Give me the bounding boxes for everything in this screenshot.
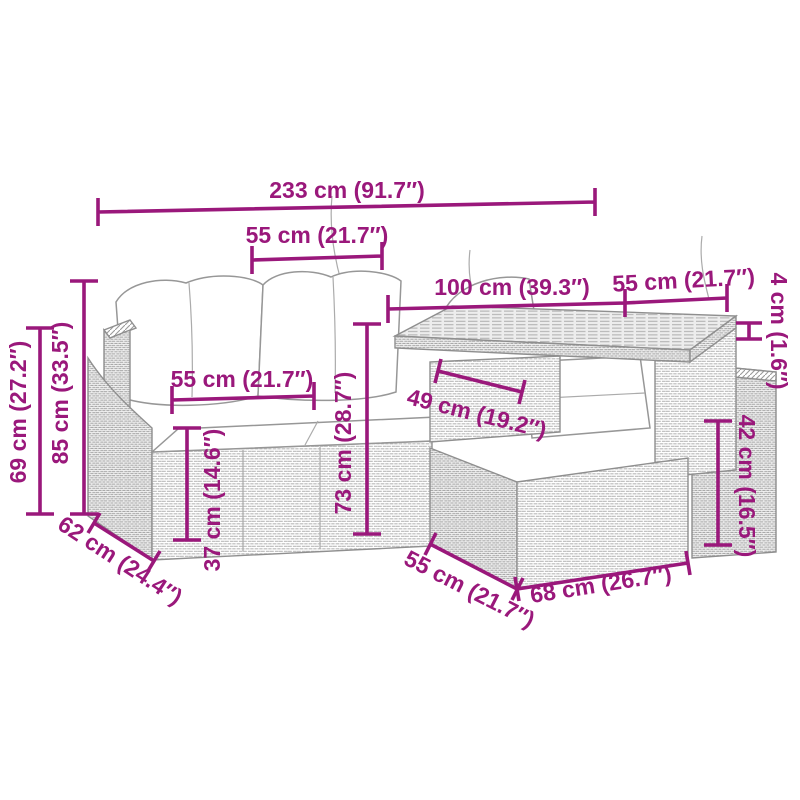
dim-label-total-height: 85 cm (33.5″)	[47, 322, 73, 465]
dim-label-armrest-height: 69 cm (27.2″)	[5, 341, 31, 484]
dim-label-seat-width: 55 cm (21.7″)	[171, 366, 314, 392]
dim-label-seat-height: 37 cm (14.6″)	[199, 429, 225, 572]
dim-table-extension: 55 cm (21.7″)	[612, 263, 756, 312]
dim-label-backrest-width: 55 cm (21.7″)	[246, 222, 389, 248]
dim-label-table-extension: 55 cm (21.7″)	[612, 263, 756, 296]
dim-label-tabletop-thickness: 4 cm (1.6″)	[766, 272, 792, 389]
dim-seat-width: 55 cm (21.7″)	[171, 366, 314, 414]
dim-label-total-width: 233 cm (91.7″)	[269, 177, 425, 203]
dim-total-width: 233 cm (91.7″)	[98, 177, 595, 226]
diagram-canvas: 233 cm (91.7″) 55 cm (21.7″) 100 cm (39.…	[0, 0, 800, 800]
dim-label-table-length: 100 cm (39.3″)	[434, 274, 590, 300]
furniture-dimension-diagram: 233 cm (91.7″) 55 cm (21.7″) 100 cm (39.…	[0, 0, 800, 800]
dim-label-table-base-height: 42 cm (16.5″)	[734, 415, 760, 558]
dim-label-backrest-height: 73 cm (28.7″)	[330, 372, 356, 515]
dim-backrest-width: 55 cm (21.7″)	[246, 222, 389, 274]
table	[395, 306, 736, 588]
sofa-front-face	[152, 441, 432, 560]
